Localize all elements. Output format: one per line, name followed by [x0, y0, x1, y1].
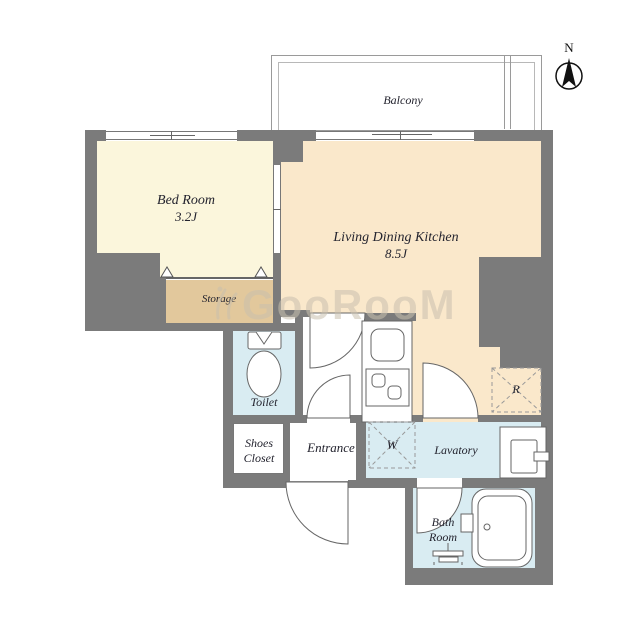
bedroom-size: 3.2J [116, 209, 256, 225]
stove-burner [388, 386, 401, 399]
storage-door-triangle [161, 267, 173, 277]
toilet-label: Toilet [214, 395, 314, 410]
watermark-icon [212, 284, 238, 322]
ldk-label: Living Dining Kitchen 8.5J [296, 230, 496, 262]
bathroom-line1: Bath [393, 515, 493, 530]
watermark-text: GooRooM [242, 284, 457, 326]
bathroom-line2: Room [393, 530, 493, 545]
lavatory-sink [511, 440, 537, 473]
lavatory-label: Lavatory [406, 443, 506, 458]
watermark: GooRooM [212, 284, 457, 326]
compass-north-label: N [564, 40, 574, 55]
storage-door-triangle [255, 267, 267, 277]
stove [366, 369, 409, 406]
entrance-label: Entrance [281, 440, 381, 456]
floor-plan: Balcony [0, 0, 640, 640]
stove-burner [372, 374, 385, 387]
lavatory-faucet [534, 452, 549, 461]
ldk-size: 8.5J [296, 246, 496, 262]
door-arc-lavatory [423, 363, 478, 418]
bath-faucet [433, 543, 463, 565]
toilet-bowl [247, 351, 281, 397]
bedroom-name: Bed Room [116, 193, 256, 209]
door-arc-main-entrance [286, 482, 348, 544]
bedroom-label: Bed Room 3.2J [116, 193, 256, 225]
bathroom-label: Bath Room [393, 515, 493, 545]
kitchen-sink [371, 329, 404, 361]
balcony-label: Balcony [343, 93, 463, 108]
refrigerator-mark-label: R [491, 382, 541, 397]
compass: N [549, 38, 589, 130]
ldk-name: Living Dining Kitchen [296, 230, 496, 246]
